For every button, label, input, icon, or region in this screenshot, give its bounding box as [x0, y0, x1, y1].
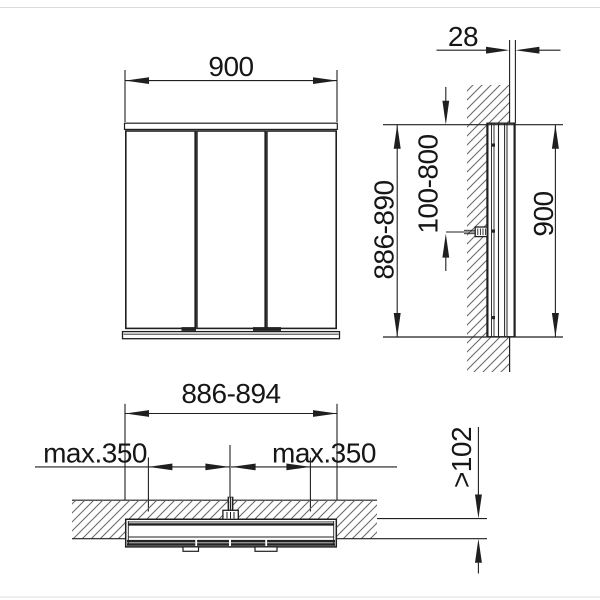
dim-label-front-width: 900 [208, 51, 253, 82]
cabinet-top-light-strip [125, 123, 338, 129]
hinge-mark-bottom [492, 316, 495, 319]
door-handle-right-plan [255, 547, 277, 551]
cabinet-side-profile [487, 123, 516, 337]
cabinet-plan [125, 519, 337, 551]
hinge-mark-middle [492, 230, 495, 233]
plan-view: 886-894 max.350 max.350 [35, 378, 487, 574]
side-view: 28 [369, 21, 564, 372]
cabinet-bottom-strip [123, 332, 340, 339]
cabinet-doors [126, 131, 336, 331]
dim-label-plan-door-right: max.350 [272, 438, 376, 469]
dim-side-cable-outlet: 100-800 [413, 87, 450, 271]
door-handle-left-plan [183, 547, 199, 551]
dim-label-plan-door-left: max.350 [43, 438, 147, 469]
dim-label-side-depth: 28 [448, 21, 478, 52]
mirror-cabinet-installation-drawing: 900 [0, 0, 600, 600]
dim-label-side-recess-height: 886-890 [369, 180, 400, 279]
technical-drawing-page: 900 [0, 0, 600, 600]
dim-plan-door-left: max.350 [35, 438, 230, 471]
front-view: 900 [123, 51, 340, 339]
dim-plan-door-right: max.350 [231, 438, 397, 471]
dim-label-side-cable-outlet: 100-800 [413, 134, 444, 233]
dim-label-side-height: 900 [528, 191, 559, 236]
mains-connection-side [446, 227, 487, 237]
dim-plan-recess-depth: >102 [446, 427, 482, 574]
hinge-mark-top [492, 144, 495, 147]
dim-label-plan-recess-depth: >102 [446, 427, 477, 488]
dim-side-recess-height: 886-890 [369, 125, 401, 337]
door-left [126, 131, 195, 328]
dim-front-width: 900 [125, 51, 337, 122]
door-handle-right [253, 327, 281, 331]
door-middle [197, 131, 265, 328]
door-handle-left [182, 327, 197, 331]
dim-side-height: 900 [528, 125, 559, 337]
door-right [267, 131, 336, 328]
dim-label-plan-width: 886-894 [181, 378, 280, 409]
